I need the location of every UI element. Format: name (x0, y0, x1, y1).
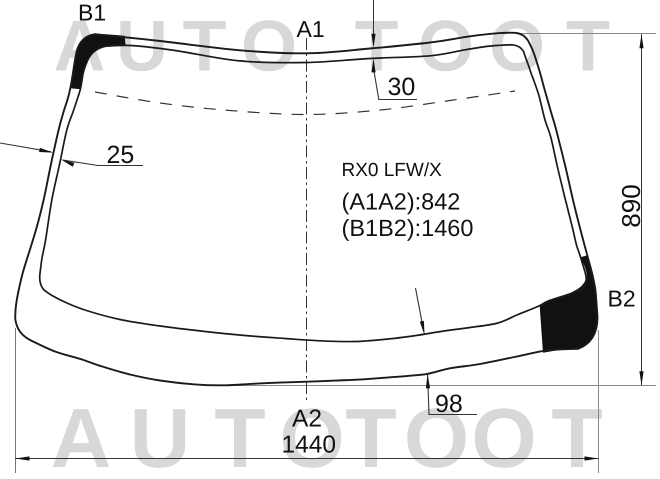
svg-text:A1: A1 (297, 16, 325, 42)
svg-text:98: 98 (435, 390, 463, 418)
svg-text:B1: B1 (78, 0, 106, 25)
svg-text:1440: 1440 (282, 432, 337, 459)
svg-text:B2: B2 (608, 286, 636, 312)
svg-text:(A1A2):842: (A1A2):842 (342, 189, 461, 215)
svg-text:O: O (471, 391, 536, 479)
svg-text:25: 25 (107, 141, 135, 169)
svg-text:O: O (418, 7, 474, 87)
svg-text:(B1B2):1460: (B1B2):1460 (342, 215, 474, 241)
svg-text:O: O (241, 7, 297, 87)
svg-text:T: T (566, 7, 610, 87)
svg-text:RX0 LFW/X: RX0 LFW/X (342, 160, 443, 181)
svg-text:30: 30 (388, 73, 416, 101)
svg-text:A: A (51, 391, 112, 479)
svg-text:T: T (551, 391, 602, 479)
svg-text:U: U (130, 391, 191, 479)
svg-text:T: T (214, 391, 265, 479)
svg-text:A2: A2 (292, 406, 322, 433)
svg-text:T: T (345, 391, 396, 479)
svg-text:890: 890 (616, 184, 646, 227)
